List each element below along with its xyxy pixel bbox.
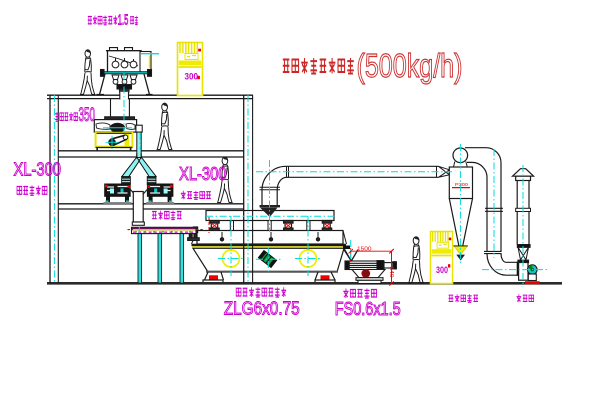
svg-text:300: 300 (185, 72, 199, 83)
svg-text:1500: 1500 (357, 246, 372, 252)
svg-text:(500kg/h): (500kg/h) (357, 47, 463, 84)
svg-text:1.5: 1.5 (118, 11, 129, 28)
svg-text:540: 540 (388, 267, 394, 278)
svg-text:P300: P300 (455, 182, 469, 187)
svg-text:XL-300: XL-300 (179, 163, 227, 184)
svg-text:350: 350 (79, 105, 96, 126)
svg-text:FS0.6x1.5: FS0.6x1.5 (335, 298, 401, 319)
svg-text:300: 300 (436, 265, 448, 275)
svg-text:ZLG6x0.75: ZLG6x0.75 (224, 298, 300, 319)
svg-text:XL-300: XL-300 (14, 159, 62, 180)
